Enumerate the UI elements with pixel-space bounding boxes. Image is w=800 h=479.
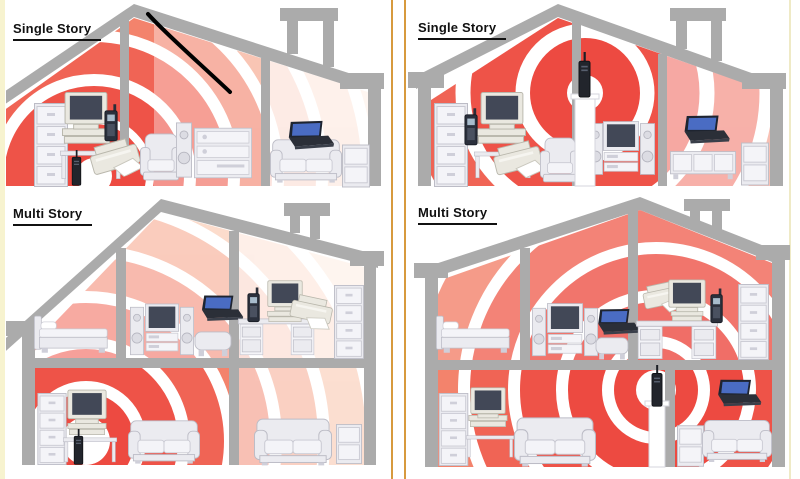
speaker (130, 307, 143, 354)
panel-multi-story-center-router (408, 195, 792, 479)
stereo-rack (194, 128, 251, 178)
label-multi-story-left: Multi Story (13, 206, 92, 226)
tv-stereo-unit (547, 304, 582, 354)
computer-monitor (471, 388, 505, 418)
tv-stereo-unit (145, 304, 178, 351)
speaker (180, 307, 193, 354)
laptop (717, 376, 762, 408)
computer-monitor (669, 280, 705, 312)
armchair (540, 138, 579, 182)
cabinet (741, 143, 768, 185)
cabinet (677, 426, 703, 467)
panel-multi-story-corner-router (6, 195, 392, 479)
desktop-computer-base (68, 423, 106, 434)
chimney (670, 8, 726, 21)
filing-cabinet (435, 104, 468, 187)
filing-cabinet (334, 285, 363, 358)
sofa (254, 419, 331, 465)
speaker (532, 308, 545, 355)
router-pedestal (649, 403, 665, 467)
computer-monitor (65, 92, 107, 129)
speaker (176, 123, 191, 177)
desktop-computer-base (476, 129, 525, 143)
sofa (128, 421, 199, 464)
chimney (280, 8, 338, 21)
sofa (515, 418, 596, 467)
armchair (140, 134, 181, 180)
filing-cabinet (739, 284, 769, 359)
center-divider-line-right (404, 0, 406, 479)
floor-beam (425, 360, 785, 370)
label-single-story-right: Single Story (418, 20, 506, 40)
chimney (684, 199, 730, 211)
cabinet (336, 425, 361, 464)
wifi-router-placement-diagram: { "panels": [ {"id": "tl", "label": "Sin… (0, 0, 800, 479)
cabinet (342, 145, 369, 187)
filing-cabinet (439, 393, 468, 465)
floor-beam (35, 358, 364, 368)
router-pedestal (575, 96, 595, 186)
sofa (702, 420, 771, 462)
label-single-story-left: Single Story (13, 21, 101, 41)
computer-monitor (68, 390, 106, 423)
speaker (640, 124, 654, 175)
desktop-computer-base (671, 311, 703, 320)
computer-monitor (481, 92, 523, 129)
tv-stereo-unit (603, 122, 638, 172)
filing-cabinet (38, 393, 66, 464)
label-multi-story-right: Multi Story (418, 205, 497, 225)
desktop-computer-base (62, 129, 111, 143)
left-page-edge-strip (0, 0, 5, 479)
chimney (284, 203, 330, 216)
